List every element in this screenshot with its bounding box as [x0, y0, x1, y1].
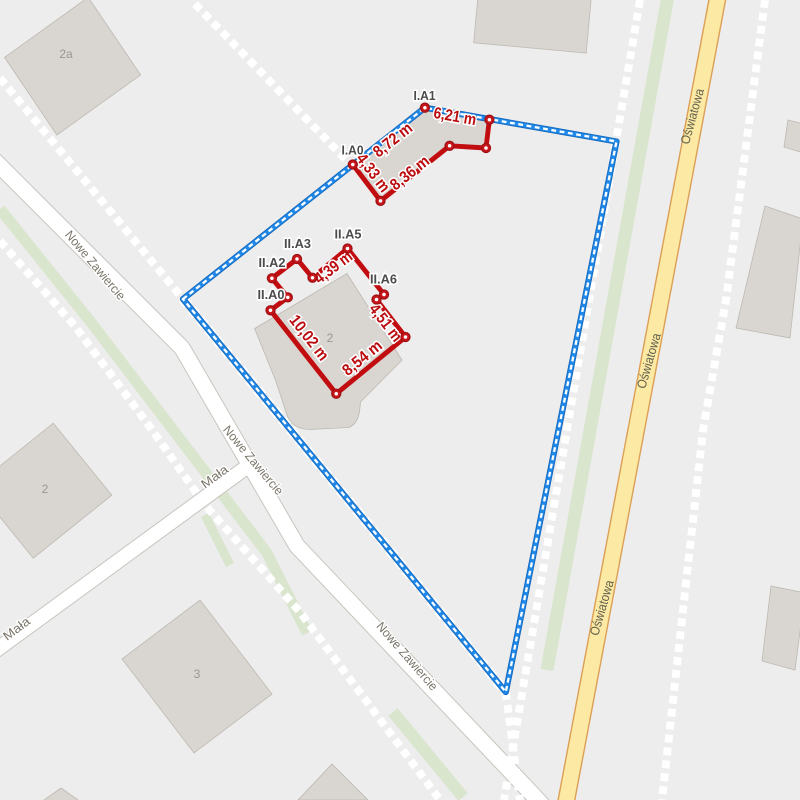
svg-text:I.A0: I.A0 [342, 144, 364, 158]
svg-text:2: 2 [42, 482, 49, 496]
svg-text:II.A3: II.A3 [284, 237, 311, 251]
svg-text:II.A2: II.A2 [259, 256, 286, 270]
svg-text:II.A0: II.A0 [258, 288, 285, 302]
svg-text:II.A6: II.A6 [370, 273, 397, 287]
svg-text:2a: 2a [59, 47, 73, 61]
svg-text:I.A1: I.A1 [414, 89, 436, 103]
svg-text:3: 3 [194, 667, 201, 681]
svg-text:2: 2 [327, 331, 334, 345]
svg-text:II.A5: II.A5 [335, 228, 362, 242]
